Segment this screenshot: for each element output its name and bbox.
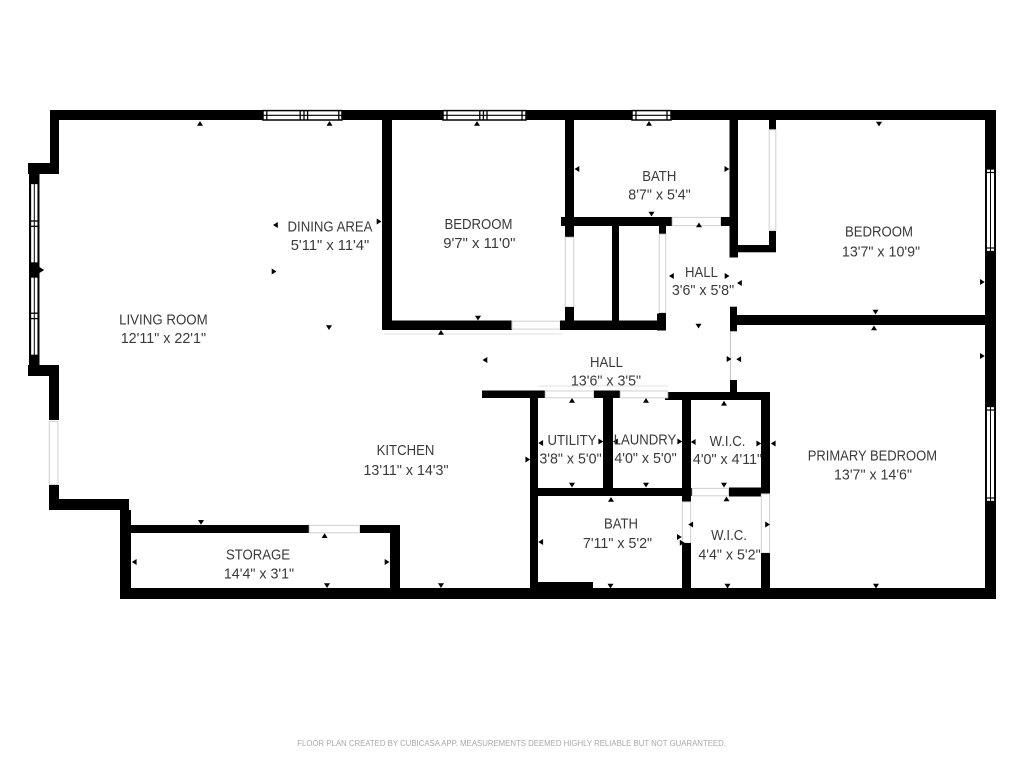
svg-text:PRIMARY BEDROOM: PRIMARY BEDROOM — [808, 448, 937, 465]
svg-text:4'0" x 5'0": 4'0" x 5'0" — [614, 450, 676, 467]
svg-text:12'11" x 22'1": 12'11" x 22'1" — [121, 330, 206, 347]
svg-text:BATH: BATH — [642, 168, 676, 185]
svg-text:9'7" x 11'0": 9'7" x 11'0" — [443, 235, 515, 252]
svg-text:KITCHEN: KITCHEN — [377, 442, 435, 459]
svg-text:W.I.C.: W.I.C. — [710, 433, 746, 450]
svg-text:BATH: BATH — [604, 516, 638, 533]
svg-text:13'11" x 14'3": 13'11" x 14'3" — [364, 462, 449, 479]
svg-text:13'7" x 14'6": 13'7" x 14'6" — [834, 467, 912, 484]
svg-text:HALL: HALL — [590, 354, 623, 371]
svg-text:3'6" x 5'8": 3'6" x 5'8" — [672, 282, 734, 299]
svg-text:4'4" x 5'2": 4'4" x 5'2" — [698, 546, 760, 563]
svg-text:DINING AREA: DINING AREA — [288, 218, 373, 235]
svg-text:8'7" x 5'4": 8'7" x 5'4" — [628, 187, 691, 204]
svg-text:13'6" x 3'5": 13'6" x 3'5" — [571, 372, 641, 389]
svg-text:14'4" x 3'1": 14'4" x 3'1" — [224, 565, 294, 582]
svg-text:3'8" x 5'0": 3'8" x 5'0" — [539, 451, 601, 468]
svg-text:LIVING ROOM: LIVING ROOM — [119, 311, 208, 328]
svg-text:STORAGE: STORAGE — [226, 547, 290, 564]
svg-text:BEDROOM: BEDROOM — [845, 224, 913, 241]
svg-text:BEDROOM: BEDROOM — [445, 216, 513, 233]
svg-text:13'7" x 10'9": 13'7" x 10'9" — [842, 244, 920, 261]
svg-text:W.I.C.: W.I.C. — [711, 527, 747, 544]
svg-text:4'0" x 4'11": 4'0" x 4'11" — [693, 451, 762, 468]
svg-text:7'11" x 5'2": 7'11" x 5'2" — [583, 535, 652, 552]
svg-text:HALL: HALL — [685, 264, 718, 281]
svg-text:UTILITY: UTILITY — [548, 432, 597, 449]
svg-text:LAUNDRY: LAUNDRY — [614, 431, 677, 448]
svg-text:FLOOR PLAN CREATED BY CUBICASA: FLOOR PLAN CREATED BY CUBICASA APP. MEAS… — [297, 738, 726, 748]
svg-text:5'11" x 11'4": 5'11" x 11'4" — [291, 237, 370, 254]
